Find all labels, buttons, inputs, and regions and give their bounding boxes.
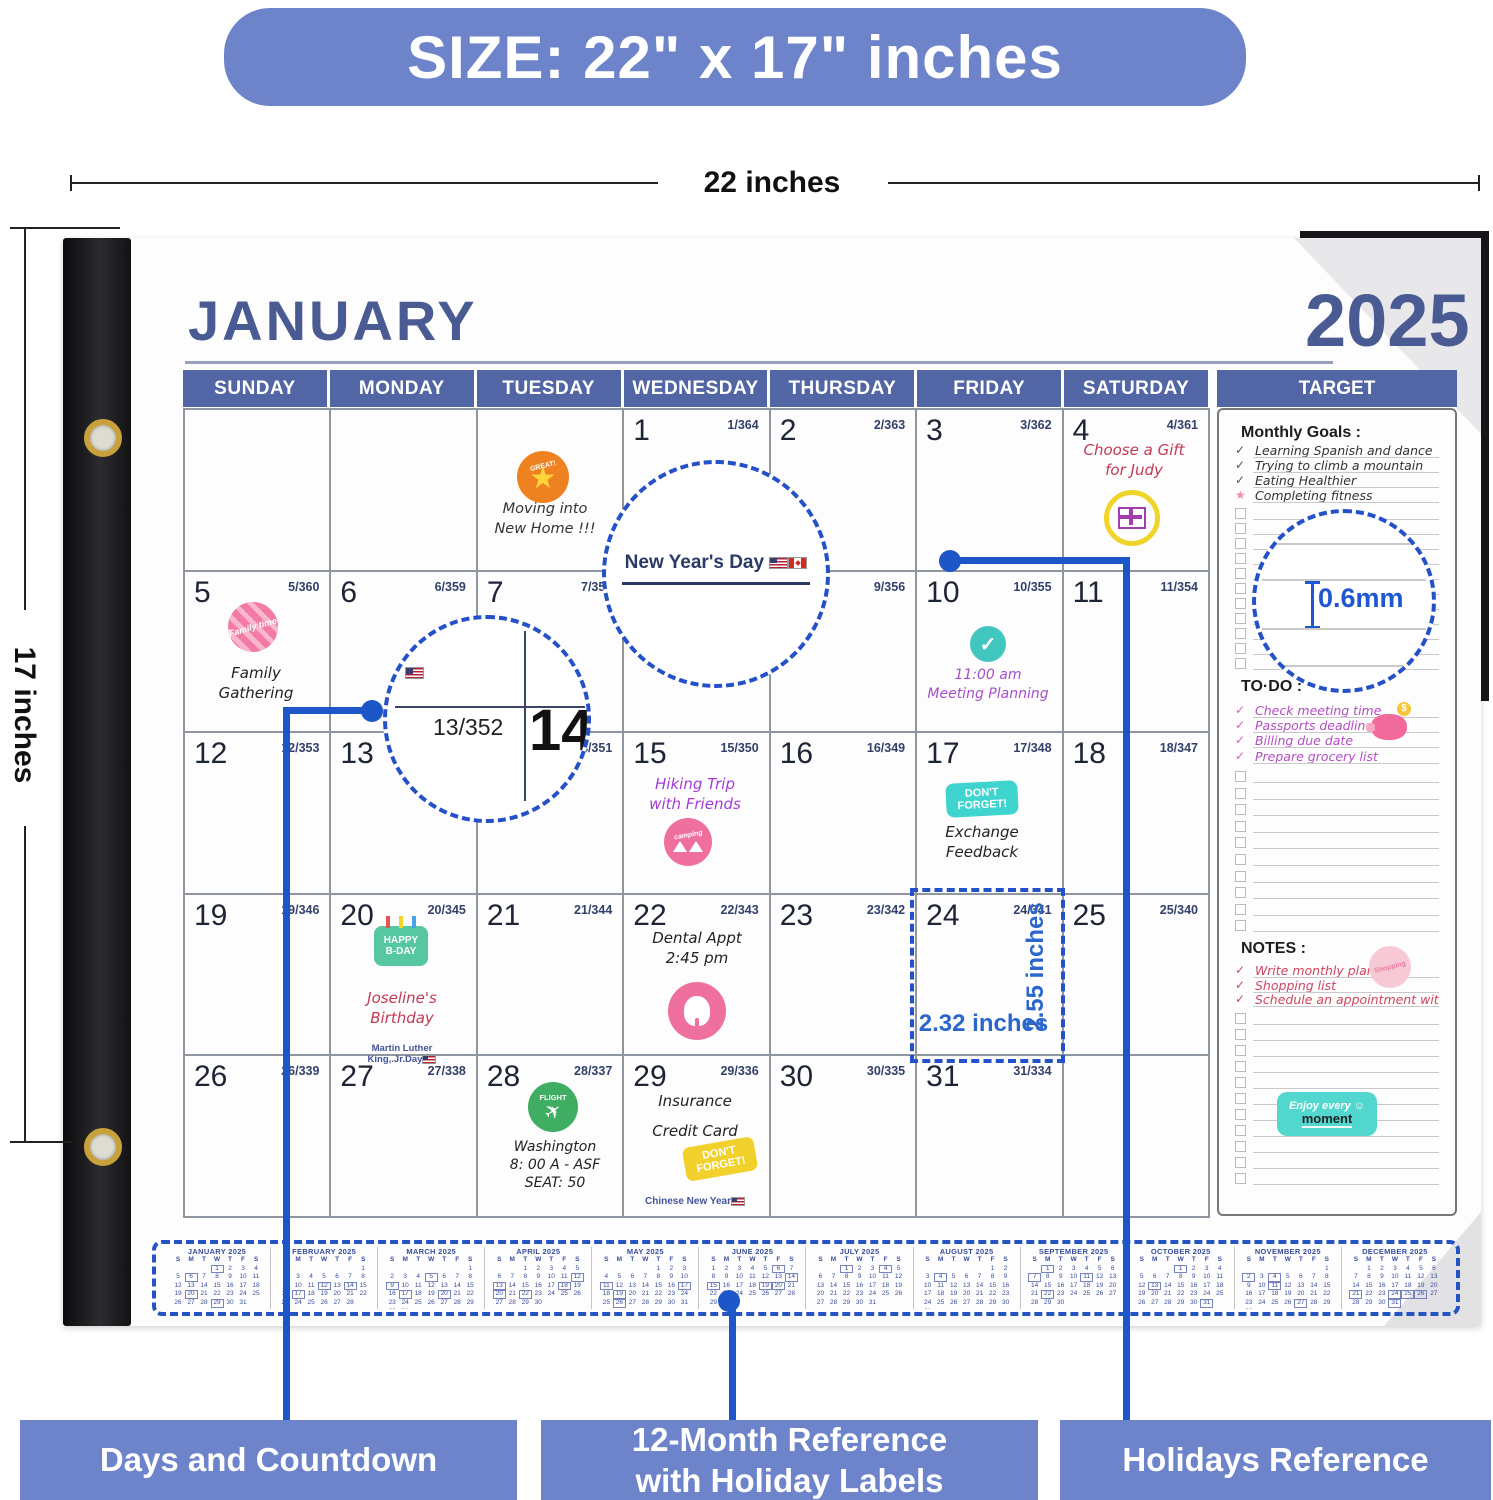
- checklist-item: ✓Schedule an appointment with a dentist: [1233, 992, 1441, 1007]
- empty-checklist-line: [1233, 1074, 1441, 1089]
- checkbox: [1235, 1173, 1246, 1184]
- mini-month-dow: SMTWTFS: [1023, 1256, 1125, 1265]
- mini-month-title: MARCH 2025: [380, 1247, 482, 1256]
- countdown-label: 28/337: [574, 1064, 612, 1078]
- ruled-line: [1253, 799, 1439, 800]
- callout-box-12-month: 12-Month Reference with Holiday Labels: [541, 1420, 1038, 1500]
- callout-line: [1123, 557, 1130, 1424]
- mini-month-dow: SMTWTFS: [487, 1256, 589, 1265]
- day-number: 20: [340, 899, 373, 933]
- mini-month: JULY 2025SMTWTFS123456789101112131415161…: [806, 1247, 913, 1309]
- mini-month-dow: SMTWTFS: [916, 1256, 1018, 1265]
- holiday-label-mlk: Martin Luther King,.Jr.Day: [336, 1033, 468, 1066]
- us-flag-icon: [769, 557, 788, 569]
- day-number: 21: [487, 899, 520, 933]
- mini-month-title: JULY 2025: [808, 1247, 910, 1256]
- day-number: 25: [1073, 899, 1106, 933]
- countdown-label: 22/343: [720, 903, 758, 917]
- day-cell: 1212/353: [185, 733, 331, 895]
- checklist-text: Check meeting time: [1255, 703, 1439, 718]
- callout-line: [729, 1300, 736, 1424]
- day-number: 1: [633, 414, 650, 448]
- gift-sticker: [1104, 490, 1160, 546]
- day-cell: 1111/354: [1064, 572, 1210, 734]
- mini-month: APRIL 2025SMTWTFS12345678910111213141516…: [485, 1247, 592, 1309]
- checklist-item: ✓Prepare grocery list: [1233, 749, 1441, 764]
- target-header: TARGET: [1217, 370, 1457, 407]
- checkbox: [1235, 1013, 1246, 1024]
- magnifier-countdown: 13/352 14: [383, 615, 591, 823]
- checkbox: [1235, 854, 1246, 865]
- event-exchange-note: Exchange Feedback: [912, 822, 1052, 863]
- countdown-label: 9/356: [874, 580, 905, 594]
- day-number: 17: [926, 737, 959, 771]
- event-family-note: Family Gathering: [183, 663, 329, 704]
- day-number: 10: [926, 576, 959, 610]
- check-icon: ✓: [1235, 703, 1245, 717]
- event-hiking-note: Hiking Trip with Friends: [622, 774, 768, 815]
- check-icon: ✓: [1235, 458, 1245, 472]
- mini-month-dow: SMTWTFS: [1237, 1256, 1339, 1265]
- ruled-line: [1253, 865, 1439, 866]
- empty-checklist-line: [1233, 801, 1441, 816]
- day-header: THURSDAY: [770, 370, 914, 407]
- width-dim-line-right: [888, 182, 1480, 184]
- checkbox: [1235, 613, 1246, 624]
- event-moving-note: Moving into New Home !!!: [455, 500, 635, 539]
- checkbox: [1235, 1141, 1246, 1152]
- mini-month-title: APRIL 2025: [487, 1247, 589, 1256]
- candle-icon: [386, 916, 390, 928]
- mini-month-title: JUNE 2025: [701, 1247, 803, 1256]
- airplane-icon: ✈: [540, 1099, 565, 1125]
- checkbox: [1235, 628, 1246, 639]
- day-number: 11: [1073, 576, 1104, 610]
- mini-month-week: 3456789: [916, 1273, 1018, 1282]
- ruled-line: [1253, 1040, 1439, 1041]
- countdown-label: 2/363: [874, 418, 905, 432]
- ruled-line: [1253, 1168, 1439, 1169]
- height-dim-tick-top: [10, 227, 120, 229]
- candle-icon: [399, 916, 403, 928]
- ruled-line: [1253, 832, 1439, 833]
- checkbox: [1235, 788, 1246, 799]
- camping-sticker-label: camping: [673, 830, 703, 842]
- event-meeting-note: 11:00 am Meeting Planning: [898, 666, 1078, 704]
- checkbox: [1235, 1045, 1246, 1056]
- mini-month-week: 567891011: [1130, 1273, 1232, 1282]
- mini-month-week: 17181920212223: [916, 1290, 1018, 1299]
- mini-month-strip: JANUARY 2025SMTWTFS123456789101112131415…: [152, 1240, 1460, 1316]
- flight-sticker: FLIGHT ✈: [528, 1082, 578, 1132]
- cny-holiday-text: Chinese New Year: [645, 1196, 731, 1207]
- checkbox: [1235, 771, 1246, 782]
- ruled-line: [1262, 579, 1426, 581]
- countdown-label: 20/345: [428, 903, 466, 917]
- mini-month-week: 123456: [1344, 1265, 1446, 1274]
- empty-checklist-line: [1233, 917, 1441, 932]
- checkbox: [1235, 821, 1246, 832]
- mini-month-week: 1: [380, 1265, 482, 1274]
- mini-month: JUNE 2025SMTWTFS123456789101112131415161…: [699, 1247, 806, 1309]
- mini-month-week: 2345678: [1237, 1273, 1339, 1282]
- camping-sticker: camping: [664, 818, 712, 866]
- checklist-text: Schedule an appointment with a dentist: [1255, 992, 1439, 1007]
- smiley-icon: ☺: [1354, 1100, 1365, 1112]
- day-cell: 33/362: [917, 410, 1063, 572]
- mini-month-week: 2728293031: [808, 1299, 910, 1308]
- day-cell: 1818/347: [1064, 733, 1210, 895]
- mini-month-week: 12: [916, 1265, 1018, 1274]
- mini-month-week: 1234: [1130, 1265, 1232, 1274]
- checkbox: [1235, 1109, 1246, 1120]
- mini-month-title: DECEMBER 2025: [1344, 1247, 1446, 1256]
- width-dim-label: 22 inches: [672, 166, 872, 200]
- great-star-sticker: GREAT!★: [517, 451, 569, 503]
- day-cell: 3030/335: [771, 1056, 917, 1218]
- checkbox: [1235, 583, 1246, 594]
- countdown-label: 4/361: [1167, 418, 1198, 432]
- empty-checklist-line: [1233, 834, 1441, 849]
- callout-line: [950, 557, 1130, 564]
- mini-month-week: 14151617181920: [1023, 1282, 1125, 1291]
- empty-checklist-line: [1233, 785, 1441, 800]
- countdown-label: 30/335: [867, 1064, 905, 1078]
- mini-month: MAY 2025SMTWTFS1234567891011121314151617…: [592, 1247, 699, 1309]
- ruled-line: [1253, 848, 1439, 849]
- mini-month-week: 1234: [166, 1265, 268, 1274]
- checklist-item: ✓Trying to climb a mountain: [1233, 458, 1441, 473]
- check-icon: ✓: [1235, 718, 1245, 732]
- empty-checklist-line: [1233, 1042, 1441, 1057]
- day-number: 15: [633, 737, 666, 771]
- countdown-label: 29/336: [720, 1064, 758, 1078]
- mini-month-week: 1: [1237, 1265, 1339, 1274]
- day-cell: [331, 410, 477, 572]
- event-flight-note: Washington 8: 00 A - ASF SEAT: 50: [470, 1138, 640, 1193]
- holiday-underline: [622, 582, 810, 585]
- mini-month-dow: SMTWTFS: [380, 1256, 482, 1265]
- us-flag-icon: [731, 1197, 745, 1206]
- mini-month-week: 31: [916, 1308, 1018, 1309]
- mini-month-week: 2345678: [380, 1273, 482, 1282]
- day-number: 13: [340, 737, 373, 771]
- thickness-label: 0.6mm: [1318, 583, 1404, 614]
- empty-checklist-line: [1233, 1026, 1441, 1041]
- day-header-row: SUNDAYMONDAYTUESDAYWEDNESDAYTHURSDAYFRID…: [183, 370, 1208, 407]
- birthday-cake-sticker: HAPPY B-DAY: [374, 926, 428, 966]
- day-number: 30: [780, 1060, 813, 1094]
- magnified-countdown: 13/352: [433, 714, 503, 741]
- checkbox: [1235, 1093, 1246, 1104]
- empty-checklist-line: [1233, 1138, 1441, 1153]
- mini-month-week: 45678910: [594, 1273, 696, 1282]
- countdown-label: 18/347: [1160, 741, 1198, 755]
- checkbox: [1235, 1061, 1246, 1072]
- mini-month-week: 9101112131415: [1237, 1282, 1339, 1291]
- mini-month-week: 891011121314: [701, 1273, 803, 1282]
- countdown-label: 6/359: [435, 580, 466, 594]
- ruled-line: [1253, 782, 1439, 783]
- todo-title: TO·DO :: [1241, 678, 1302, 696]
- us-flag-icon: [405, 667, 424, 679]
- mini-month-dow: SMTWTFS: [594, 1256, 696, 1265]
- day-number: 19: [194, 899, 227, 933]
- empty-checklist-line: [1233, 868, 1441, 883]
- mini-month-title: OCTOBER 2025: [1130, 1247, 1232, 1256]
- checkbox: [1235, 523, 1246, 534]
- family-sticker-label: Family time: [228, 615, 278, 638]
- empty-checklist-line: [1233, 1010, 1441, 1025]
- callout-box2-label: 12-Month Reference with Holiday Labels: [632, 1419, 947, 1500]
- family-time-sticker: Family time: [228, 602, 278, 652]
- mini-month-week: 12345: [808, 1265, 910, 1274]
- mini-month-week: 19202122232425: [166, 1290, 268, 1299]
- mini-month-dow: SMTWTFS: [166, 1256, 268, 1265]
- day-cell: 1919/346: [185, 895, 331, 1057]
- shopping-sticker: Shopping: [1369, 946, 1411, 988]
- width-dim-line-left: [70, 182, 658, 184]
- mini-month-week: 78910111213: [1344, 1273, 1446, 1282]
- callout-dot: [718, 1290, 740, 1312]
- day-header: SATURDAY: [1064, 370, 1208, 407]
- checklist-item: ✓Learning Spanish and dance: [1233, 443, 1441, 458]
- title-rule: [185, 361, 1333, 364]
- mini-month-dow: SMTWTFS: [701, 1256, 803, 1265]
- countdown-label: 27/338: [428, 1064, 466, 1078]
- checklist-item: ★Completing fitness: [1233, 488, 1441, 503]
- checkbox: [1235, 508, 1246, 519]
- monthly-goals-title: Monthly Goals :: [1241, 424, 1361, 442]
- countdown-label: 23/342: [867, 903, 905, 917]
- grommet-icon: [84, 419, 122, 457]
- day-header: FRIDAY: [917, 370, 1061, 407]
- event-insurance-note: Insurance Credit Card: [622, 1094, 768, 1139]
- empty-checklist-line: [1233, 901, 1441, 916]
- countdown-label: 25/340: [1160, 903, 1198, 917]
- countdown-label: 16/349: [867, 741, 905, 755]
- ruled-line: [1262, 543, 1426, 545]
- checkbox: [1235, 804, 1246, 815]
- checkbox: [1235, 887, 1246, 898]
- day-header: WEDNESDAY: [624, 370, 768, 407]
- empty-checklist-line: [1233, 1058, 1441, 1073]
- day-number: 18: [1073, 737, 1106, 771]
- mini-month-dow: SMTWTFS: [1130, 1256, 1232, 1265]
- magnifier-holiday: New Year's Day: [602, 460, 830, 688]
- mini-month-week: 21222324252627: [1023, 1290, 1125, 1299]
- checkbox: [1235, 538, 1246, 549]
- candle-icon: [412, 916, 416, 928]
- check-sticker: ✓: [970, 626, 1006, 662]
- checkbox: [1235, 1029, 1246, 1040]
- ruled-line: [1253, 1152, 1439, 1153]
- check-icon: ✓: [1235, 978, 1245, 992]
- mini-month: JANUARY 2025SMTWTFS123456789101112131415…: [164, 1247, 271, 1309]
- ruled-line: [1253, 1024, 1439, 1025]
- height-dim-tick-bottom: [10, 1141, 72, 1143]
- cell-width-label: 2.32 inches: [912, 1010, 1055, 1038]
- countdown-label: 11/354: [1160, 580, 1198, 594]
- mini-month-week: 12131415161718: [166, 1282, 268, 1291]
- mini-month-week: 2930: [701, 1299, 803, 1308]
- ruled-line: [1253, 1056, 1439, 1057]
- ruled-line: [1253, 931, 1439, 932]
- event-dental-note: Dental Appt 2:45 pm: [622, 928, 772, 969]
- empty-checklist-line: [1233, 818, 1441, 833]
- us-flag-icon: [422, 1055, 436, 1064]
- tooth-icon: [684, 996, 710, 1026]
- callout-dot: [361, 700, 383, 722]
- countdown-label: 21/344: [574, 903, 612, 917]
- ruled-line: [1253, 1088, 1439, 1089]
- mini-month-week: 19202122232425: [1130, 1290, 1232, 1299]
- countdown-label: 31/334: [1013, 1064, 1051, 1078]
- gift-icon: [1118, 507, 1146, 529]
- empty-checklist-line: [1233, 1170, 1441, 1185]
- ruled-line: [1262, 628, 1426, 630]
- checkbox: [1235, 643, 1246, 654]
- day-number: 6: [340, 576, 357, 610]
- width-dim-tick-left: [70, 175, 72, 191]
- mini-month-week: 6789101112: [808, 1273, 910, 1282]
- width-dim-tick-right: [1478, 175, 1480, 191]
- callout-line: [283, 707, 290, 1424]
- checklist-item: ✓Eating Healthier: [1233, 473, 1441, 488]
- day-number: 29: [633, 1060, 666, 1094]
- mini-month-title: AUGUST 2025: [916, 1247, 1018, 1256]
- checklist-text: Learning Spanish and dance: [1255, 443, 1439, 458]
- thickness-measure-line: [1311, 581, 1314, 628]
- empty-checklist-line: [1233, 1154, 1441, 1169]
- dont-forget-sticker: DON'T FORGET!: [945, 780, 1019, 818]
- day-cell: 2121/344: [478, 895, 624, 1057]
- day-header: SUNDAY: [183, 370, 327, 407]
- mini-month-week: 567891011: [166, 1273, 268, 1282]
- mini-month-week: 23242526272829: [1237, 1299, 1339, 1308]
- day-cell: [1064, 1056, 1210, 1218]
- mini-month-week: 30: [1237, 1308, 1339, 1309]
- mini-month-week: 1234567: [701, 1265, 803, 1274]
- day-number: 12: [194, 737, 227, 771]
- checklist-text: Eating Healthier: [1255, 473, 1439, 488]
- day-cell: 2525/340: [1064, 895, 1210, 1057]
- mini-month-week: 12345: [487, 1265, 589, 1274]
- mini-month-week: 24252627282930: [916, 1299, 1018, 1308]
- check-icon: ✓: [1235, 963, 1245, 977]
- product-image: SIZE: 22" x 17" inches 22 inches 17 inch…: [0, 0, 1493, 1500]
- ruled-line: [1262, 665, 1426, 667]
- mini-month: AUGUST 2025SMTWTFS1234567891011121314151…: [914, 1247, 1021, 1309]
- shopping-sticker-label: Shopping: [1373, 960, 1406, 975]
- mini-month-week: 11121314151617: [594, 1282, 696, 1291]
- day-cell: 2323/342: [771, 895, 917, 1057]
- mini-month-title: SEPTEMBER 2025: [1023, 1247, 1125, 1256]
- countdown-label: 5/360: [288, 580, 319, 594]
- holiday-label-cny: Chinese New Year: [622, 1196, 768, 1207]
- backing-edge-right: [1480, 231, 1489, 701]
- checklist-item: ✓Billing due date: [1233, 733, 1441, 748]
- magnified-cell-border: [524, 631, 526, 801]
- checklist-text: Trying to climb a mountain: [1255, 458, 1439, 473]
- canada-flag-icon: [788, 557, 807, 569]
- mini-month: SEPTEMBER 2025SMTWTFS1234567891011121314…: [1021, 1247, 1128, 1309]
- checklist-text: Billing due date: [1255, 733, 1439, 748]
- mini-month-title: MAY 2025: [594, 1247, 696, 1256]
- ruled-line: [1253, 1184, 1439, 1185]
- mini-month-week: 123: [594, 1265, 696, 1274]
- empty-checklist-line: [1233, 851, 1441, 866]
- checkbox: [1235, 871, 1246, 882]
- checklist-text: Completing fitness: [1255, 488, 1439, 503]
- year-label: 2025: [1305, 278, 1457, 363]
- day-header: MONDAY: [330, 370, 474, 407]
- mini-month-title: JANUARY 2025: [166, 1247, 268, 1256]
- tooth-sticker: [668, 982, 726, 1040]
- tents-icon: [673, 841, 703, 852]
- mini-month-week: 9101112131415: [380, 1282, 482, 1291]
- event-birthday-note: Joseline's Birthday: [336, 988, 468, 1029]
- checkbox: [1235, 598, 1246, 609]
- mini-month-week: 262728293031: [1130, 1299, 1232, 1308]
- checkbox: [1235, 1157, 1246, 1168]
- mini-month: DECEMBER 2025SMTWTFS12345678910111213141…: [1342, 1247, 1448, 1309]
- mini-month: NOVEMBER 2025SMTWTFS12345678910111213141…: [1235, 1247, 1342, 1309]
- ruled-line: [1253, 502, 1439, 503]
- size-banner-label: SIZE: 22" x 17" inches: [407, 23, 1063, 92]
- empty-checklist-line: [1233, 884, 1441, 899]
- mini-month-week: 28293031: [1344, 1299, 1446, 1308]
- mini-month-week: 123456: [1023, 1265, 1125, 1274]
- mini-month-week: 20212223242526: [808, 1290, 910, 1299]
- mini-month-week: 21222324252627: [1344, 1290, 1446, 1299]
- callout-box-holidays: Holidays Reference: [1060, 1420, 1491, 1500]
- day-number: 5: [194, 576, 211, 610]
- notes-title: NOTES :: [1241, 940, 1306, 958]
- mini-month-week: 12131415161718: [1130, 1282, 1232, 1291]
- checkbox: [1235, 1125, 1246, 1136]
- checkbox: [1235, 837, 1246, 848]
- empty-checklist-line: [1233, 768, 1441, 783]
- checklist-text: Shopping list: [1255, 978, 1439, 993]
- check-icon: ✓: [1235, 443, 1245, 457]
- mini-month-week: 25262728293031: [594, 1299, 696, 1308]
- checkbox: [1235, 1077, 1246, 1088]
- height-dim-line-bottom: [24, 826, 26, 1142]
- month-title: JANUARY: [188, 288, 478, 353]
- check-icon: ✓: [1235, 992, 1245, 1006]
- mini-month: OCTOBER 2025SMTWTFS123456789101112131415…: [1128, 1247, 1235, 1309]
- ruled-line: [1253, 1006, 1439, 1007]
- countdown-label: 1/364: [727, 418, 758, 432]
- mini-month-week: 14151617181920: [1344, 1282, 1446, 1291]
- day-number: 26: [194, 1060, 227, 1094]
- countdown-label: 15/350: [720, 741, 758, 755]
- enjoy-line2: moment: [1302, 1112, 1353, 1128]
- check-icon: ✓: [1235, 733, 1245, 747]
- checkbox: [1235, 904, 1246, 915]
- mini-month-week: 27282930: [487, 1299, 589, 1308]
- ruled-line: [1253, 1072, 1439, 1073]
- countdown-label: 17/348: [1013, 741, 1051, 755]
- mini-month-dow: SMTWTFS: [808, 1256, 910, 1265]
- checkbox: [1235, 658, 1246, 669]
- ruled-line: [1253, 763, 1439, 764]
- mini-month-week: 20212223242526: [487, 1290, 589, 1299]
- countdown-label: 3/362: [1020, 418, 1051, 432]
- day-cell: 1616/349: [771, 733, 917, 895]
- day-number: 23: [780, 899, 813, 933]
